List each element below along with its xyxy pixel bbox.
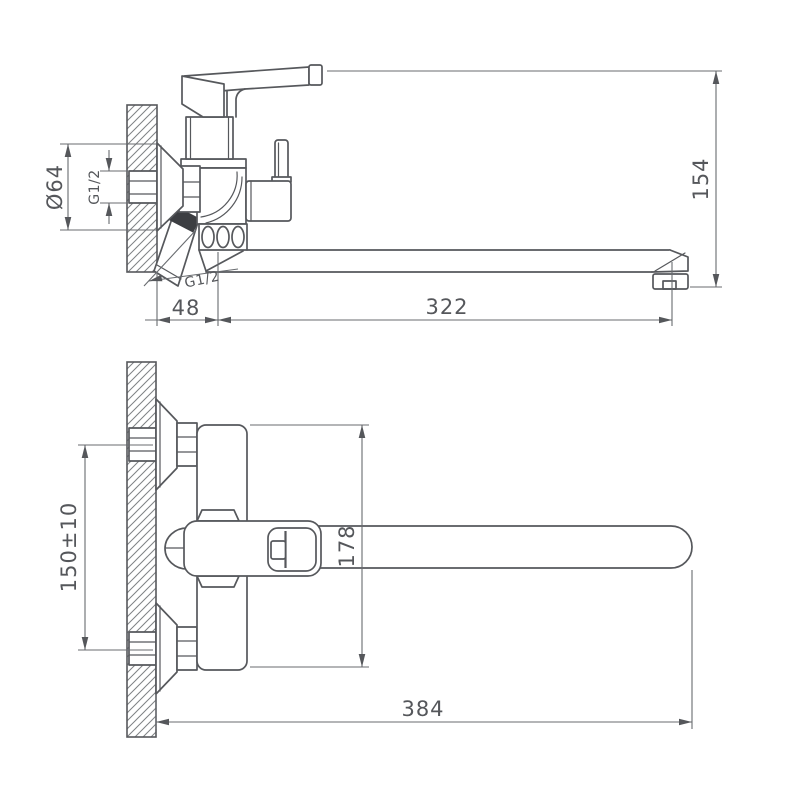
dim-spout-reach-label: 322	[425, 295, 468, 319]
dim-inlet-thread-label: G1/2	[87, 169, 103, 204]
spout-front	[310, 526, 692, 568]
dim-height: 154	[327, 71, 722, 287]
front-view: 150±10 178 384	[57, 362, 692, 737]
technical-drawing: Ø64 G1/2 154 48 322	[0, 0, 800, 800]
side-view: Ø64 G1/2 154 48 322	[43, 65, 722, 326]
dim-flange-diameter-label: Ø64	[43, 164, 67, 210]
dim-overall-length-label: 384	[401, 697, 444, 721]
dim-height-label: 154	[689, 157, 713, 200]
spout-collar	[199, 224, 247, 250]
dim-wall-offset: 48 322	[145, 252, 672, 326]
wall-section-hatch-front	[127, 362, 156, 737]
lever-handle	[182, 65, 322, 117]
spout-collar-bottom	[197, 576, 239, 587]
dim-inlet-thread: G1/2	[87, 150, 128, 224]
valve-body	[197, 168, 246, 224]
spout-collar-top	[197, 510, 239, 521]
dim-vertical-span-label: 178	[335, 524, 359, 567]
handle-cap	[182, 76, 224, 117]
cartridge-column	[186, 117, 233, 159]
dim-mount-spacing-label: 150±10	[57, 502, 81, 592]
dim-wall-offset-label: 48	[172, 296, 201, 320]
drawing-canvas: Ø64 G1/2 154 48 322	[0, 0, 800, 800]
lever-tip	[309, 65, 322, 85]
diverter-housing	[246, 181, 291, 221]
lever-handle-front	[184, 521, 321, 576]
spout	[199, 250, 688, 289]
inlet-pipe	[129, 171, 157, 203]
diverter-knob	[272, 140, 291, 182]
dim-outlet-thread-label: G1/2	[183, 269, 221, 292]
